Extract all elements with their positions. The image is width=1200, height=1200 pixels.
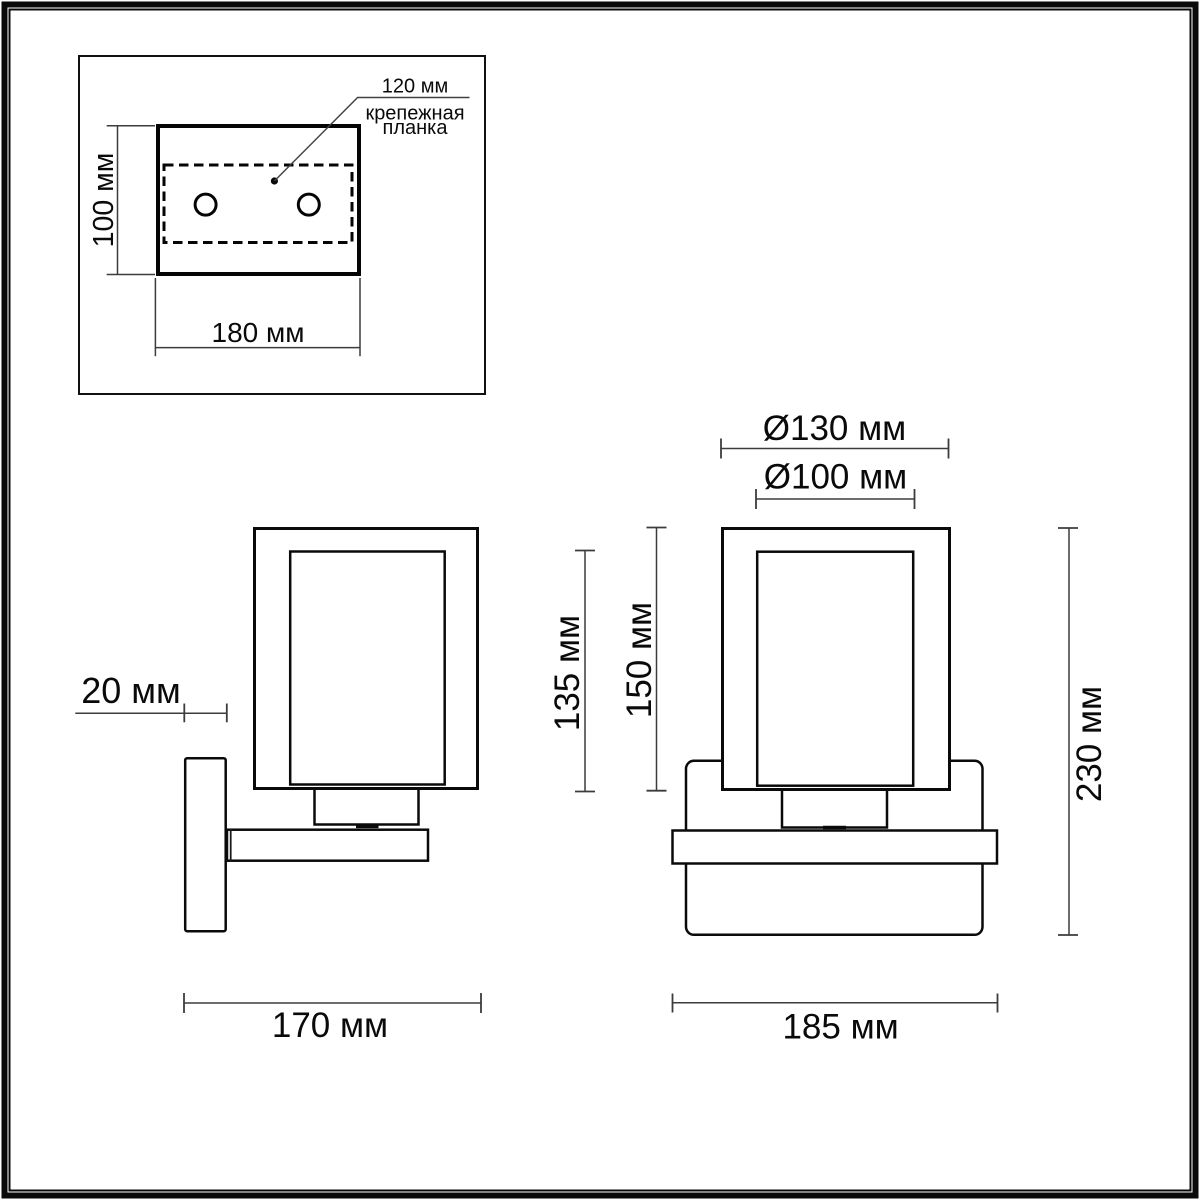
svg-text:Ø130 мм: Ø130 мм <box>763 409 906 448</box>
svg-text:170 мм: 170 мм <box>272 1006 388 1045</box>
svg-text:20 мм: 20 мм <box>81 670 181 711</box>
svg-text:120 мм: 120 мм <box>382 76 448 98</box>
svg-text:185 мм: 185 мм <box>782 1008 898 1047</box>
svg-text:135 мм: 135 мм <box>548 615 587 731</box>
svg-text:Ø100 мм: Ø100 мм <box>764 458 907 497</box>
svg-text:150 мм: 150 мм <box>620 602 659 718</box>
svg-text:100 мм: 100 мм <box>88 153 120 248</box>
svg-text:планка: планка <box>383 117 449 139</box>
svg-text:230 мм: 230 мм <box>1070 686 1109 802</box>
svg-text:180 мм: 180 мм <box>212 317 305 348</box>
